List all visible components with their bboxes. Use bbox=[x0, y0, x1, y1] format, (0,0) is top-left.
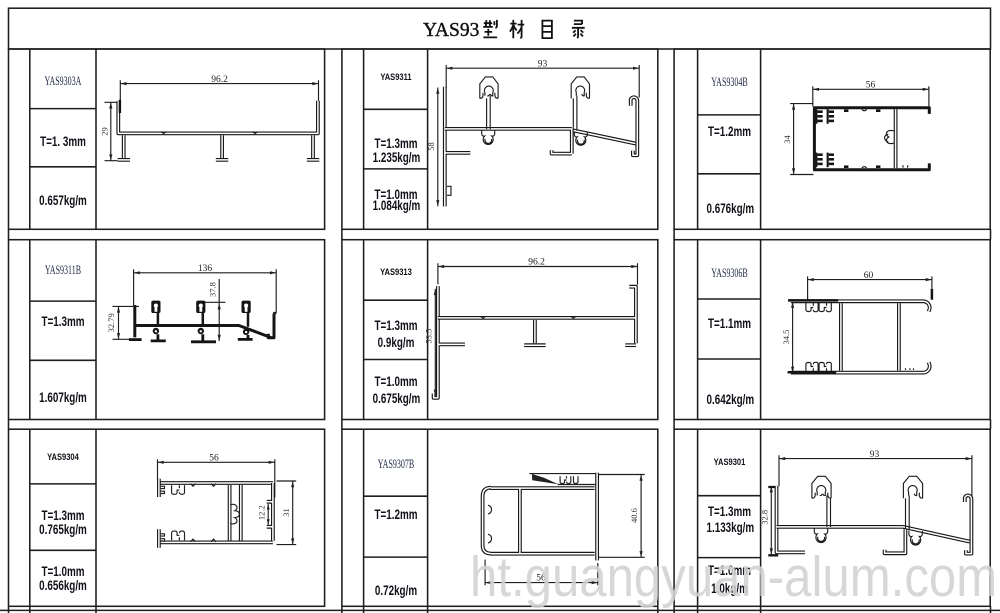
svg-text:60: 60 bbox=[864, 271, 874, 281]
svg-text:56: 56 bbox=[866, 80, 876, 90]
svg-text:32.8: 32.8 bbox=[760, 510, 770, 525]
svg-text:53.5: 53.5 bbox=[424, 329, 434, 344]
svg-text:96.2: 96.2 bbox=[528, 258, 545, 268]
svg-text:40.6: 40.6 bbox=[629, 508, 639, 523]
svg-text:12.2: 12.2 bbox=[256, 505, 266, 520]
svg-text:136: 136 bbox=[198, 264, 213, 274]
svg-text:56: 56 bbox=[209, 454, 219, 464]
svg-text:93: 93 bbox=[870, 450, 880, 460]
svg-text:29: 29 bbox=[99, 127, 109, 136]
svg-text:31: 31 bbox=[281, 508, 291, 517]
svg-text:58: 58 bbox=[426, 142, 436, 151]
svg-text:34.5: 34.5 bbox=[781, 330, 791, 345]
svg-text:96.2: 96.2 bbox=[211, 75, 228, 85]
svg-text:34: 34 bbox=[782, 135, 792, 144]
svg-text:32.79: 32.79 bbox=[106, 313, 116, 332]
svg-text:37.8: 37.8 bbox=[208, 282, 218, 297]
svg-text:93: 93 bbox=[538, 59, 548, 69]
